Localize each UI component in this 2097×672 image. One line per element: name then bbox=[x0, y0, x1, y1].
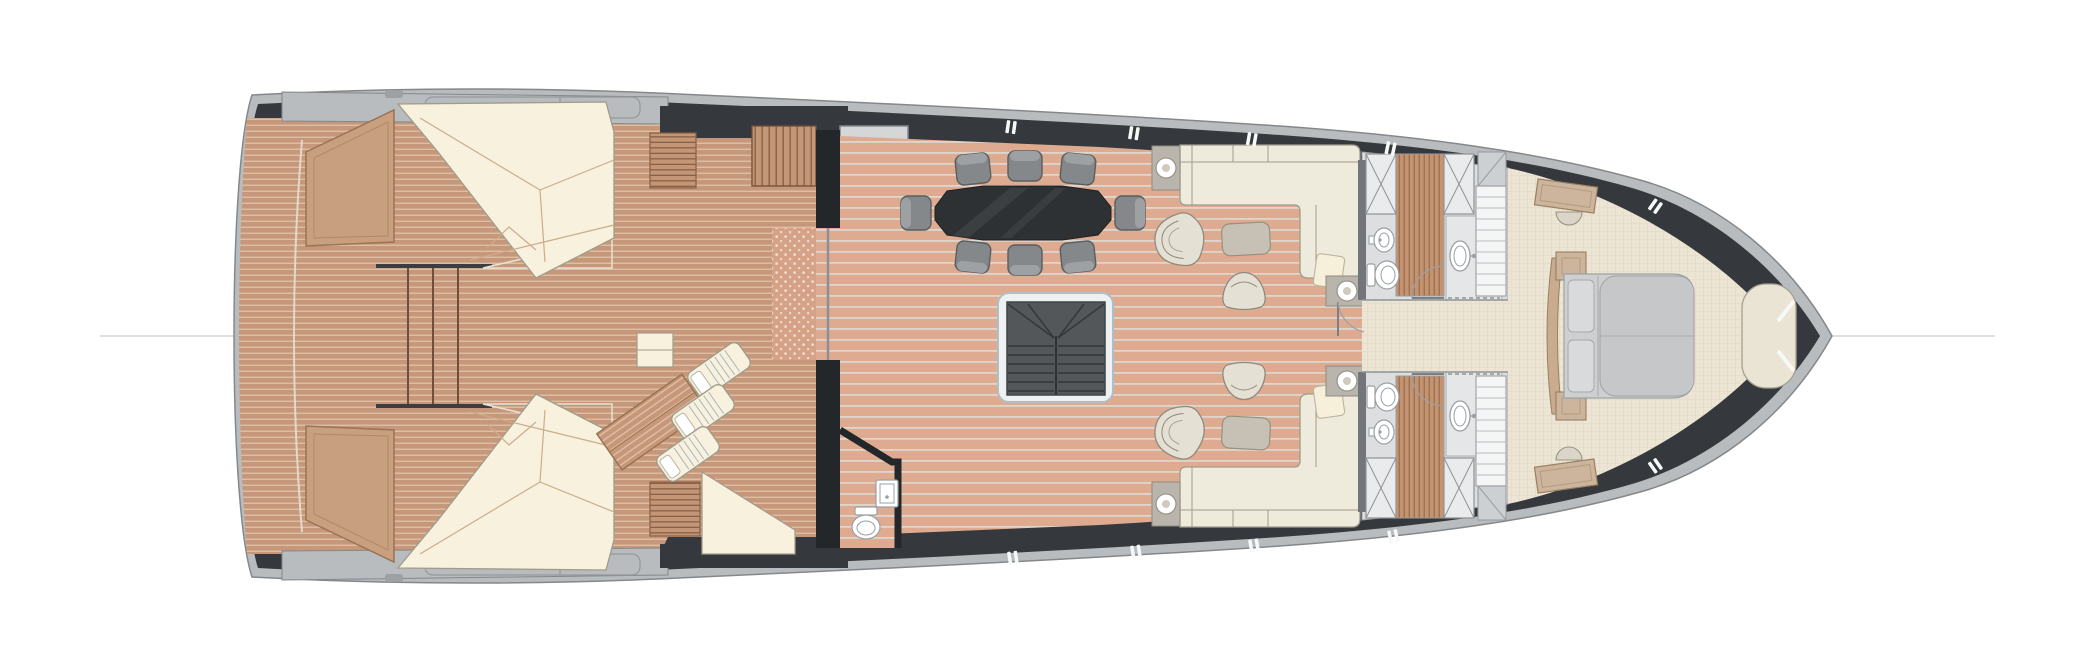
side-deck-stairs-port bbox=[650, 133, 696, 188]
pillow bbox=[1568, 340, 1594, 392]
entry-mat bbox=[772, 228, 816, 360]
table-lamp bbox=[1156, 158, 1176, 178]
salon bbox=[772, 130, 1368, 548]
double-bed bbox=[1547, 252, 1694, 420]
shower-floor bbox=[1396, 154, 1444, 296]
bow-sofa bbox=[1742, 284, 1796, 388]
flybridge-stair-treads bbox=[752, 126, 816, 186]
deck-plan-canvas: fly bbox=[0, 0, 2097, 672]
toilet bbox=[1367, 261, 1399, 289]
table-lamp bbox=[1337, 371, 1357, 391]
ottoman bbox=[1221, 222, 1271, 256]
toilet bbox=[1367, 383, 1399, 411]
pillow bbox=[1568, 280, 1594, 332]
cleat-mark bbox=[385, 90, 403, 98]
dining-chair bbox=[901, 196, 931, 230]
yacht-deck-plan: fly bbox=[0, 0, 2097, 672]
cleat-mark bbox=[385, 574, 403, 582]
dining-chair bbox=[955, 240, 992, 273]
dining-chair bbox=[955, 152, 992, 185]
table-lamp bbox=[1337, 281, 1357, 301]
cabinet bbox=[1478, 152, 1506, 186]
shelf-unit bbox=[1476, 186, 1506, 296]
salon-bathroom-wall bbox=[1358, 160, 1366, 300]
salon-staircase bbox=[998, 293, 1113, 402]
main-bulkhead-wall bbox=[816, 130, 840, 228]
bathroom-starboard bbox=[1358, 372, 1508, 520]
salon-bathroom-wall bbox=[1358, 372, 1366, 512]
dining-table bbox=[935, 186, 1111, 240]
main-bulkhead-wall bbox=[816, 360, 840, 548]
dining-chair bbox=[1008, 151, 1042, 181]
shelf-unit bbox=[1476, 376, 1506, 486]
table-lamp bbox=[1156, 494, 1176, 514]
dining-chair bbox=[1060, 152, 1097, 185]
side-table bbox=[637, 333, 673, 367]
corridor bbox=[1338, 300, 1508, 372]
shower-floor bbox=[1396, 376, 1444, 518]
day-head-sink bbox=[876, 480, 898, 507]
day-head-toilet bbox=[852, 507, 880, 539]
side-deck-stairs-starboard bbox=[650, 482, 700, 536]
dining-chair bbox=[1060, 240, 1097, 273]
dining-chair bbox=[1008, 245, 1042, 275]
dining-chair bbox=[1115, 196, 1145, 230]
cabinet bbox=[1478, 486, 1506, 520]
corridor-floor bbox=[1362, 300, 1508, 372]
ottoman bbox=[1221, 416, 1271, 450]
bathroom-port bbox=[1358, 152, 1508, 300]
